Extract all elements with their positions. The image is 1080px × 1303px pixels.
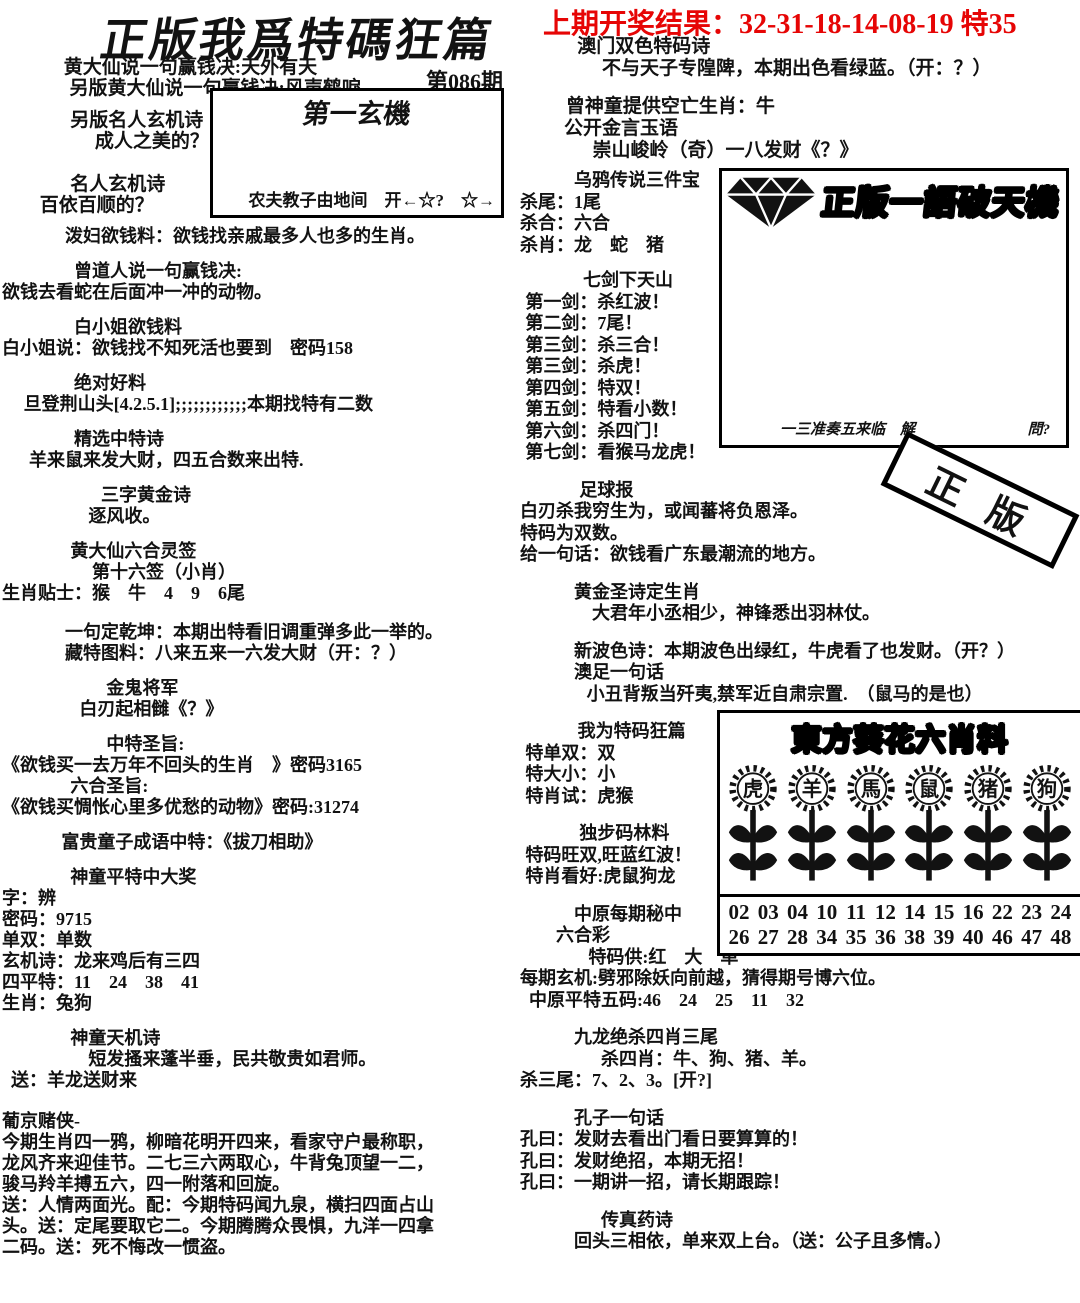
sunflower-row: 虎 羊 馬 xyxy=(720,759,1080,897)
number-cell: 15 xyxy=(931,900,957,925)
text-line: 回头三相依，单来双上台。（送：公子且多情。） xyxy=(520,1231,1080,1253)
text-line: 中原平特五码:46 24 25 11 32 xyxy=(520,990,1080,1012)
sunflower-icon: 鼠 xyxy=(903,761,955,885)
text-line: 不与天子专隍陴，本期出色看绿蓝。（开：？） xyxy=(545,58,992,80)
text-line: 黄金圣诗定生肖 xyxy=(520,582,1080,604)
svg-text:鼠: 鼠 xyxy=(919,778,940,801)
text-line: 黄大仙说一句赢钱决:天外有天 xyxy=(60,57,361,78)
diamond-icon xyxy=(724,174,818,232)
svg-text:狗: 狗 xyxy=(1036,777,1056,801)
text-line: 三字黄金诗 xyxy=(2,485,527,506)
number-cell: 46 xyxy=(989,925,1015,950)
text-line: 传真药诗 xyxy=(520,1210,1080,1232)
number-cell: 36 xyxy=(872,925,898,950)
text-line: 《欲钱买惆怅心里多优愁的动物》密码:31274 xyxy=(2,797,527,818)
footer-left-text: 一三准奏五来临 解 xyxy=(780,418,915,439)
number-cell: 35 xyxy=(843,925,869,950)
text-line: 骏马羚羊搏五六，四一附落和回旋。 xyxy=(2,1174,527,1195)
text-line: 孔子一句话 xyxy=(520,1108,1080,1130)
number-cell: 11 xyxy=(843,900,869,925)
number-cell: 48 xyxy=(1048,925,1074,950)
text-line: 第十六签（小肖） xyxy=(2,562,527,583)
text-line: 生肖贴士：猴 牛 4 9 6尾 xyxy=(2,583,527,604)
number-cell: 12 xyxy=(872,900,898,925)
text-line: 黄大仙六合灵签 xyxy=(2,541,527,562)
zodiac-numbers-row2: 262728343536383940464748 xyxy=(726,925,1074,950)
macau-poem-block: 澳门双色特码诗不与天子专隍陴，本期出色看绿蓝。（开：？）曾神童提供空亡生肖：牛公… xyxy=(545,36,992,162)
text-line: 九龙绝杀四肖三尾 xyxy=(520,1027,1080,1049)
text-line: 送：羊龙送财来 xyxy=(2,1070,527,1091)
number-cell: 40 xyxy=(960,925,986,950)
text-line: 孔曰：发财绝招，本期无招！ xyxy=(520,1151,1080,1173)
sunflower-box-title: 東方葵花六肖料 xyxy=(720,715,1080,759)
number-cell: 39 xyxy=(931,925,957,950)
text-line: 百依百顺的？ xyxy=(36,195,209,216)
text-line: 欲钱去看蛇在后面冲一冲的动物。 xyxy=(2,282,527,303)
text-line: 单双：单数 xyxy=(2,930,527,951)
text-line: 成人之美的？ xyxy=(36,131,209,152)
first-mystery-footer: 农夫教子由地间 开←☆? ☆→ xyxy=(249,186,496,211)
svg-text:猪: 猪 xyxy=(977,777,998,801)
text-line: 《欲钱买一去万年不回头的生肖 》密码3165 xyxy=(2,755,527,776)
sunflower-icon: 羊 xyxy=(786,761,838,885)
number-cell: 27 xyxy=(755,925,781,950)
text-line: 今期生肖四一鸦，柳暗花明开四来，看家守户最称职， xyxy=(2,1132,527,1153)
text-line: 逐风收。 xyxy=(2,506,527,527)
sunflower-six-zodiac-box: 東方葵花六肖料 虎 羊 xyxy=(717,710,1080,956)
text-line: 羊来鼠来发大财，四五合数来出特. xyxy=(2,450,527,471)
text-line: 新波色诗：本期波色出绿红，牛虎看了也发财。（开？） xyxy=(520,641,1080,663)
lottery-tip-sheet: 上期开奖结果：32-31-18-14-08-19 特35 正版我爲特碼狂篇 黄大… xyxy=(0,0,1080,1303)
text-line: 神童天机诗 xyxy=(2,1028,527,1049)
text-line: 富贵童子成语中特：《拔刀相助》 xyxy=(2,832,527,853)
text-line: 杀三尾：7、2、3。[开?] xyxy=(520,1070,1080,1092)
text-line: 杀四肖：牛、狗、猪、羊。 xyxy=(520,1049,1080,1071)
text-line: 大君年小丞相少，神锋悉出羽林仗。 xyxy=(520,603,1080,625)
number-cell: 47 xyxy=(1019,925,1045,950)
first-mystery-title: 第一玄機 xyxy=(210,92,503,131)
number-cell: 16 xyxy=(960,900,986,925)
number-cell: 04 xyxy=(785,900,811,925)
text-line: 玄机诗：龙来鸡后有三四 xyxy=(2,951,527,972)
text-line: 澳足一句话 xyxy=(520,662,1080,684)
number-cell: 24 xyxy=(1048,900,1074,925)
text-line: 中特圣旨: xyxy=(2,734,527,755)
text-line: 一句定乾坤：本期出特看旧调重弹多此一举的。 xyxy=(2,622,527,643)
svg-text:羊: 羊 xyxy=(802,777,822,801)
text-line: 葡京赌侠- xyxy=(2,1111,527,1132)
text-line: 崇山峻岭（奇）一八发财《？》 xyxy=(545,140,992,162)
number-cell: 10 xyxy=(814,900,840,925)
sunflower-icon: 猪 xyxy=(962,761,1014,885)
number-cell: 28 xyxy=(785,925,811,950)
diamond-slogan-box: 正版一語破天機 一三准奏五来临 解 問? xyxy=(719,168,1069,448)
diamond-slogan-title: 正版一語破天機 xyxy=(819,176,1062,224)
text-line: 精选中特诗 xyxy=(2,429,527,450)
text-line: 白刃起相雠《？》 xyxy=(2,699,527,720)
text-line: 小丑背叛当歼夷,禁军近自肃宗置. （鼠马的是也） xyxy=(520,684,1080,706)
text-line: 密码：9715 xyxy=(2,909,527,930)
text-line: 旦登荆山头[4.2.5.1];;;;;;;;;;;;本期找特有二数 xyxy=(2,394,527,415)
text-line: 送：人情两面光。配：今期特码闻九泉，横扫四面占山 xyxy=(2,1195,527,1216)
text-line: 藏特图料：八来五来一六发大财（开：？） xyxy=(2,643,527,664)
number-cell: 03 xyxy=(755,900,781,925)
text-line: 龙风齐来迎佳节。二七三六两取心，牛背兔顶望一二， xyxy=(2,1153,527,1174)
number-cell: 02 xyxy=(726,900,752,925)
zodiac-numbers-row1: 020304101112141516222324 xyxy=(726,900,1074,925)
text-line: 澳门双色特码诗 xyxy=(545,36,992,58)
number-cell: 26 xyxy=(726,925,752,950)
text-line: 曾道人说一句赢钱决: xyxy=(2,261,527,282)
left-column: 泼妇欲钱料：欲钱找亲戚最多人也多的生肖。曾道人说一句赢钱决:欲钱去看蛇在后面冲一… xyxy=(2,226,527,1258)
sunflower-icon: 馬 xyxy=(845,761,897,885)
sunflower-icon: 狗 xyxy=(1021,761,1073,885)
text-line: 曾神童提供空亡生肖：牛 xyxy=(545,96,992,118)
text-line: 白小姐说：欲钱找不知死活也要到 密码158 xyxy=(2,338,527,359)
celebrity-mystery-block: 另版名人玄机诗成人之美的？名人玄机诗百依百顺的？ xyxy=(36,110,209,216)
text-line: 生肖：兔狗 xyxy=(2,993,527,1014)
sunflower-icon: 虎 xyxy=(727,761,779,885)
text-line: 头。送：定尾要取它二。今期腾腾众畏惧，九洋一四拿 xyxy=(2,1216,527,1237)
text-line: 短发搔来蓬半垂，民共敬贵如君师。 xyxy=(2,1049,527,1070)
text-line: 公开金言玉语 xyxy=(545,118,992,140)
number-cell: 14 xyxy=(902,900,928,925)
text-line: 六合圣旨: xyxy=(2,776,527,797)
text-line: 二码。送：死不悔改一惯盗。 xyxy=(2,1237,527,1258)
footer-right-text: 問? xyxy=(1027,418,1050,439)
number-cell: 34 xyxy=(814,925,840,950)
text-line: 金鬼将军 xyxy=(2,678,527,699)
text-line: 白小姐欲钱料 xyxy=(2,317,527,338)
svg-text:虎: 虎 xyxy=(743,777,763,801)
text-line: 四平特：11 24 38 41 xyxy=(2,972,527,993)
text-line: 神童平特中大奖 xyxy=(2,867,527,888)
text-line: 给一句话：欲钱看广东最潮流的地方。 xyxy=(520,544,1080,566)
number-cell: 38 xyxy=(902,925,928,950)
first-mystery-box: 第一玄機 农夫教子由地间 开←☆? ☆→ xyxy=(210,88,504,218)
svg-text:馬: 馬 xyxy=(860,779,880,801)
text-line: 孔曰：一期讲一招，请长期跟踪！ xyxy=(520,1172,1080,1194)
diamond-slogan-header: 正版一語破天機 xyxy=(722,171,1066,232)
text-line: 字：辨 xyxy=(2,888,527,909)
text-line: 名人玄机诗 xyxy=(36,174,209,195)
zodiac-numbers: 020304101112141516222324 262728343536383… xyxy=(720,894,1080,953)
diamond-slogan-footer: 一三准奏五来临 解 問? xyxy=(722,418,1066,439)
text-line: 绝对好料 xyxy=(2,373,527,394)
text-line: 另版名人玄机诗 xyxy=(36,110,209,131)
text-line: 孔曰：发财去看出门看日要算算的！ xyxy=(520,1129,1080,1151)
number-cell: 22 xyxy=(989,900,1015,925)
text-line: 泼妇欲钱料：欲钱找亲戚最多人也多的生肖。 xyxy=(2,226,527,247)
number-cell: 23 xyxy=(1019,900,1045,925)
text-line: 每期玄机:劈邪除妖向前越，猜得期号博六位。 xyxy=(520,968,1080,990)
